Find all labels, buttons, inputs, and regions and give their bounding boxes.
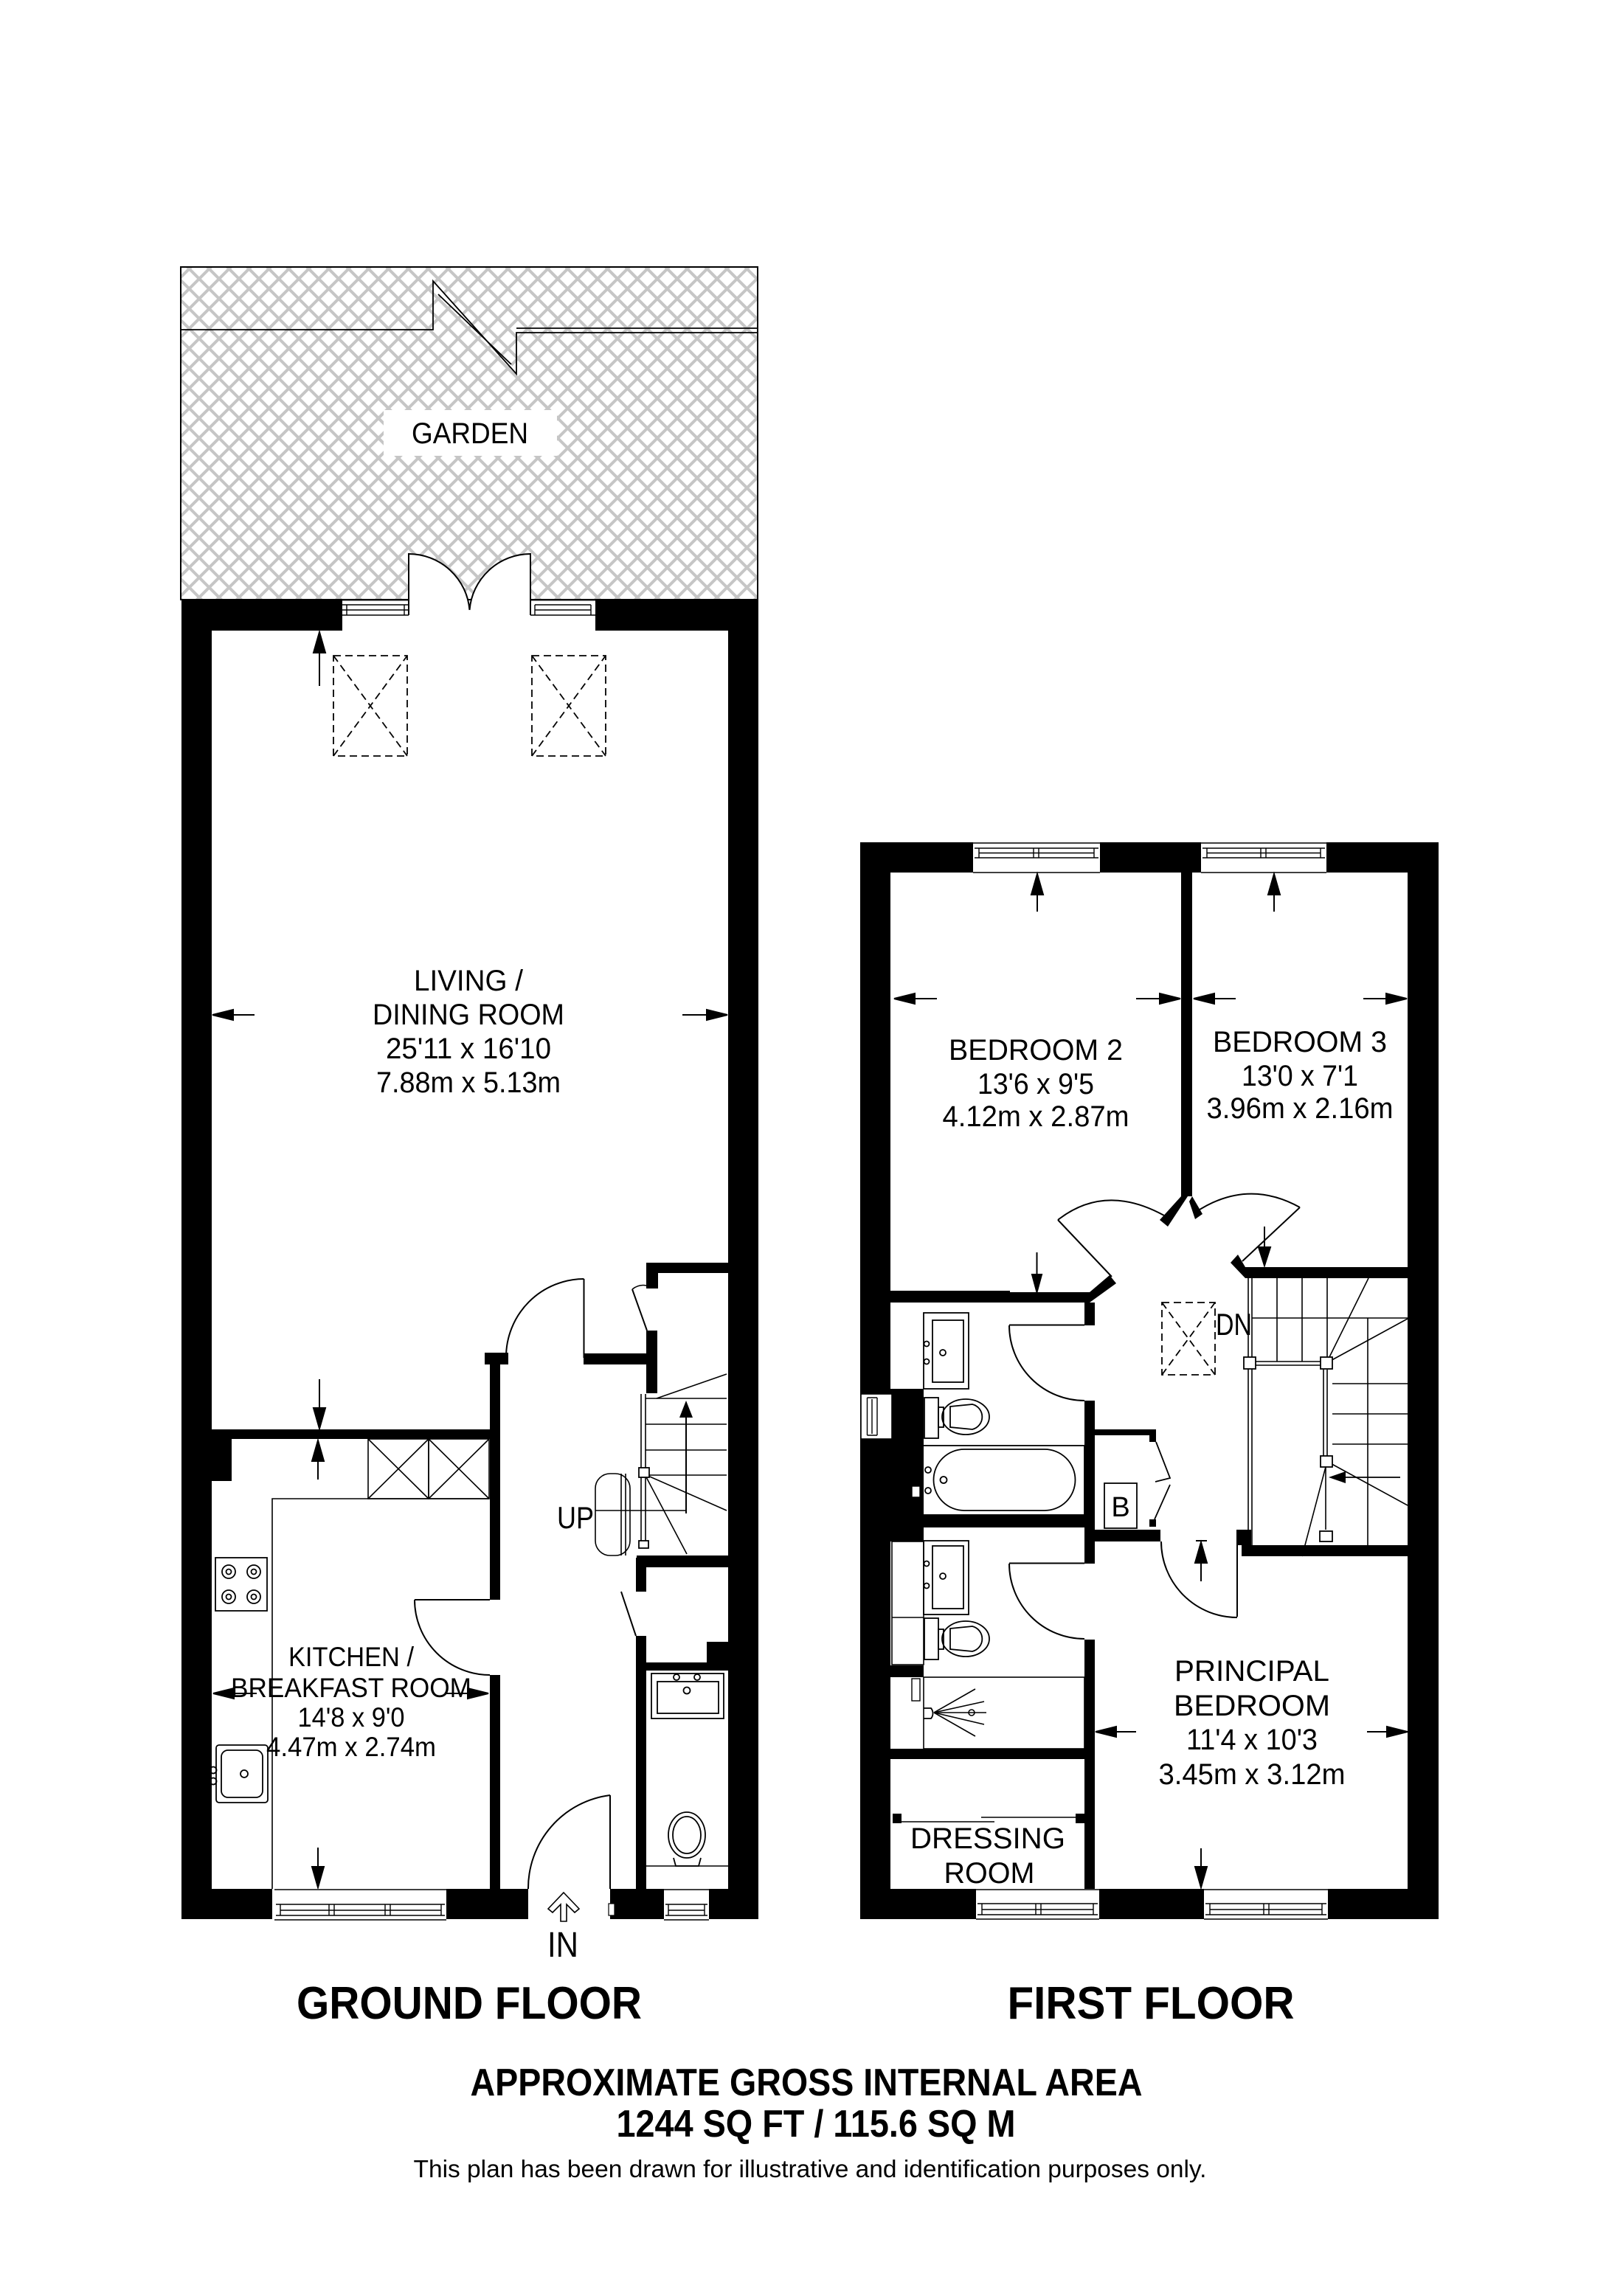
svg-text:DRESSING: DRESSING [910, 1822, 1065, 1855]
svg-text:FIRST FLOOR: FIRST FLOOR [1008, 1978, 1295, 2029]
svg-text:3.96m x 2.16m: 3.96m x 2.16m [1207, 1092, 1394, 1125]
svg-text:25'11 x 16'10: 25'11 x 16'10 [386, 1033, 551, 1065]
svg-text:GARDEN: GARDEN [412, 417, 528, 450]
svg-text:DINING ROOM: DINING ROOM [373, 999, 564, 1031]
svg-text:BEDROOM 2: BEDROOM 2 [949, 1034, 1123, 1067]
svg-text:LIVING /: LIVING / [414, 965, 524, 997]
svg-text:4.47m x 2.74m: 4.47m x 2.74m [266, 1732, 436, 1762]
svg-text:GROUND FLOOR: GROUND FLOOR [297, 1978, 642, 2029]
svg-text:1244 SQ FT / 115.6 SQ M: 1244 SQ FT / 115.6 SQ M [617, 2103, 1016, 2146]
svg-text:PRINCIPAL: PRINCIPAL [1174, 1655, 1329, 1688]
svg-text:13'6 x 9'5: 13'6 x 9'5 [977, 1068, 1094, 1100]
svg-text:BEDROOM 3: BEDROOM 3 [1213, 1026, 1387, 1058]
svg-text:UP: UP [557, 1500, 594, 1535]
svg-text:This plan has been drawn for i: This plan has been drawn for illustrativ… [414, 2155, 1207, 2182]
svg-text:IN: IN [547, 1926, 578, 1965]
svg-text:BEDROOM: BEDROOM [1174, 1690, 1330, 1722]
svg-text:DN: DN [1216, 1307, 1252, 1342]
svg-text:7.88m x 5.13m: 7.88m x 5.13m [376, 1067, 561, 1099]
svg-text:APPROXIMATE GROSS INTERNAL ARE: APPROXIMATE GROSS INTERNAL AREA [471, 2061, 1143, 2104]
svg-text:13'0 x 7'1: 13'0 x 7'1 [1242, 1060, 1358, 1092]
svg-text:11'4 x 10'3: 11'4 x 10'3 [1186, 1724, 1318, 1756]
svg-text:BREAKFAST ROOM: BREAKFAST ROOM [231, 1673, 471, 1703]
svg-text:4.12m x 2.87m: 4.12m x 2.87m [943, 1100, 1129, 1133]
svg-text:3.45m x 3.12m: 3.45m x 3.12m [1159, 1758, 1346, 1791]
svg-text:KITCHEN /: KITCHEN / [288, 1642, 415, 1672]
svg-text:14'8 x 9'0: 14'8 x 9'0 [298, 1702, 405, 1733]
svg-text:ROOM: ROOM [944, 1857, 1035, 1890]
svg-text:B: B [1111, 1492, 1129, 1523]
